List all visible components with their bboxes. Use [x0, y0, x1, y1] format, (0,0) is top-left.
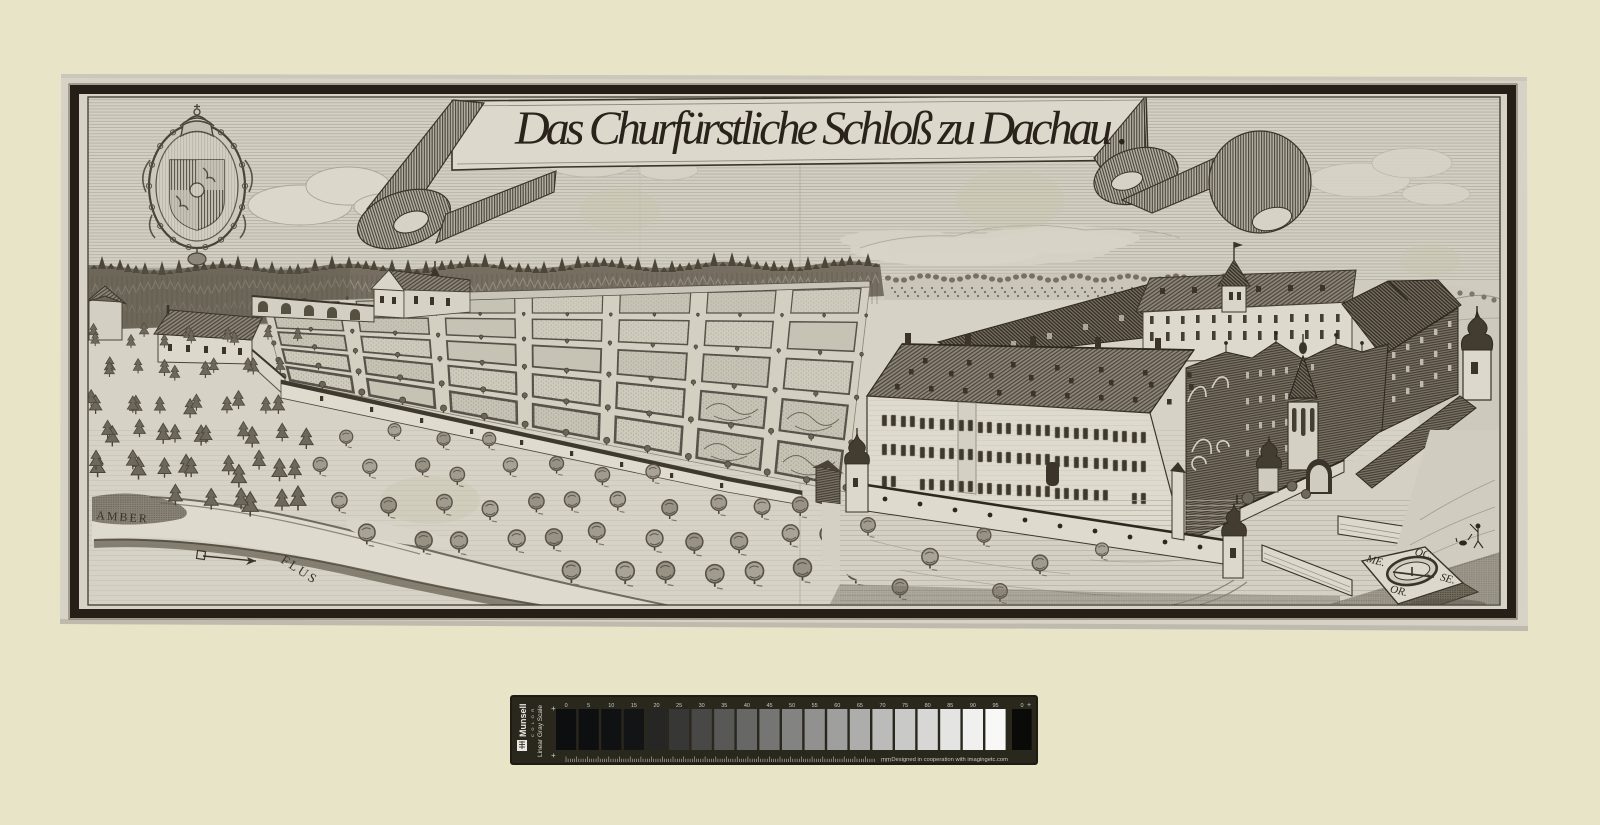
- svg-text:+: +: [551, 704, 556, 713]
- svg-text:10: 10: [608, 703, 614, 709]
- svg-text:0: 0: [1020, 703, 1023, 709]
- svg-text:mm: mm: [881, 758, 891, 764]
- svg-text:Das Churfürstliche Schloß zu D: Das Churfürstliche Schloß zu Dachau .: [514, 102, 1129, 155]
- svg-text:+: +: [551, 751, 556, 760]
- svg-text:40: 40: [744, 703, 750, 709]
- svg-text:50: 50: [789, 703, 795, 709]
- svg-text:Munsell: Munsell: [518, 703, 528, 737]
- svg-text:60: 60: [834, 703, 840, 709]
- svg-text:65: 65: [857, 703, 863, 709]
- svg-text:35: 35: [721, 703, 727, 709]
- svg-text:70: 70: [879, 703, 885, 709]
- svg-text:80: 80: [925, 703, 931, 709]
- svg-text:+: +: [1027, 702, 1031, 709]
- svg-text:45: 45: [766, 703, 772, 709]
- svg-text:95: 95: [992, 703, 998, 709]
- svg-text:C O L O R: C O L O R: [530, 708, 535, 737]
- svg-text:90: 90: [970, 703, 976, 709]
- svg-text:85: 85: [947, 703, 953, 709]
- svg-text:5: 5: [587, 703, 590, 709]
- svg-text:75: 75: [902, 703, 908, 709]
- svg-text:55: 55: [812, 703, 818, 709]
- svg-text:Linear Gray Scale: Linear Gray Scale: [537, 705, 544, 757]
- svg-text:Designed in cooperation with i: Designed in cooperation with imagingetc.…: [891, 757, 1008, 763]
- svg-text:30: 30: [699, 703, 705, 709]
- svg-text:0: 0: [565, 703, 568, 709]
- svg-text:15: 15: [631, 703, 637, 709]
- svg-text:25: 25: [676, 703, 682, 709]
- svg-text:20: 20: [653, 703, 659, 709]
